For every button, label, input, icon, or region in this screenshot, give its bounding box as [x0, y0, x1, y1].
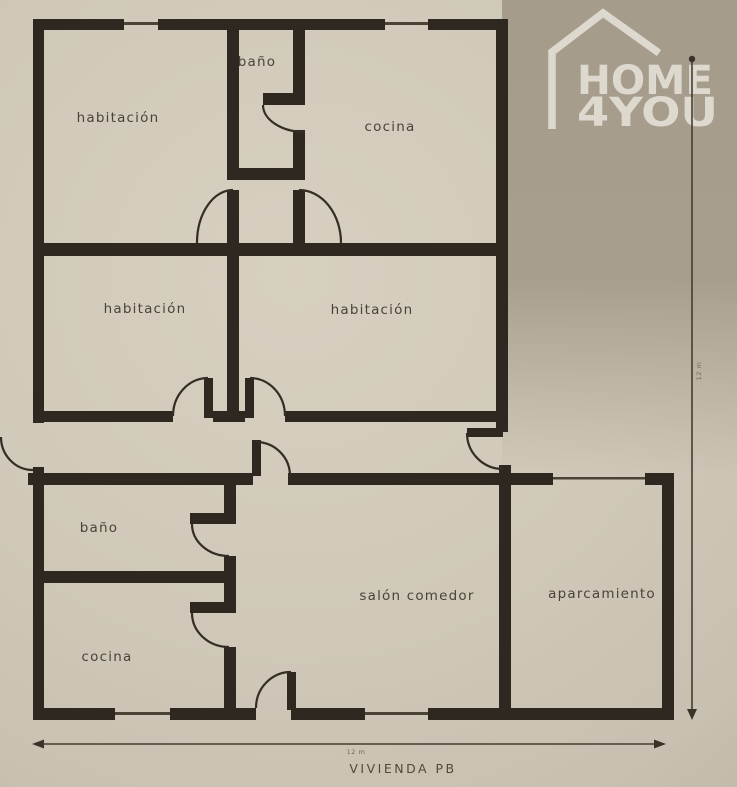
- room-label-habitacion-top-left: habitación: [77, 110, 160, 126]
- room-label-cocina-bottom: cocina: [82, 649, 133, 665]
- room-label-aparcamiento: aparcamiento: [548, 586, 656, 602]
- plan-title: VIVIENDA PB: [349, 761, 456, 776]
- room-label-bano-bottom: baño: [80, 520, 118, 536]
- logo-text-line2: 4YOU: [577, 90, 718, 136]
- dimension-label-right: 12 m: [695, 362, 703, 381]
- room-label-bano-top: baño: [238, 54, 276, 70]
- home4you-logo: HOME 4YOU: [552, 13, 718, 136]
- dimension-label-bottom: 12 m: [347, 748, 366, 756]
- dimension-arrow-right: [654, 740, 666, 749]
- floor-plan-photo: habitación baño cocina habitación habita…: [0, 0, 737, 787]
- room-label-habitacion-mid-right: habitación: [331, 302, 414, 318]
- room-label-cocina-top: cocina: [365, 119, 416, 135]
- room-label-habitacion-mid-left: habitación: [104, 301, 187, 317]
- dimension-arrow-down: [687, 709, 697, 720]
- dimension-markers: [32, 56, 697, 749]
- room-label-salon-comedor: salón comedor: [359, 588, 474, 604]
- dimension-dot-top: [689, 56, 695, 62]
- dimension-arrow-left: [32, 740, 44, 749]
- floor-plan-drawing: habitación baño cocina habitación habita…: [0, 0, 737, 787]
- dimension-lines: [34, 57, 692, 744]
